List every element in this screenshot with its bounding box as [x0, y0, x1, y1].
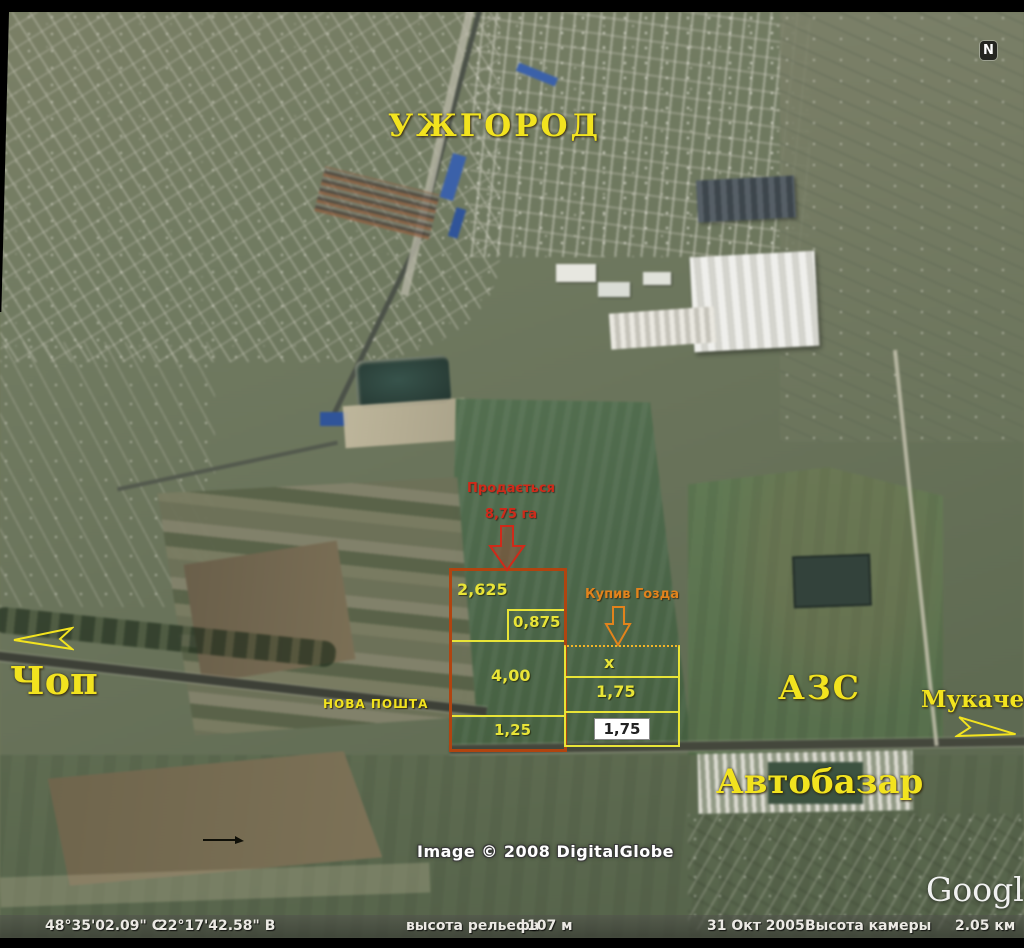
imagery-copyright: Image © 2008 DigitalGlobe — [417, 842, 674, 861]
poi-label-nova-poshta: НОВА ПОШТА — [323, 697, 428, 711]
status-bar: 48°35'02.09" С 22°17'42.58" В высота рел… — [0, 915, 1024, 938]
sale-title: Продається — [467, 481, 555, 496]
down-arrow-icon — [604, 605, 632, 647]
town-label-chop: Чоп — [10, 658, 98, 703]
plot-area-label: 2,625 — [457, 580, 508, 599]
town-label-mukachevo: Мукачево — [921, 686, 1024, 713]
poi-label-car-market: Автобазар — [716, 762, 923, 802]
plot-divider — [566, 676, 678, 678]
camera-altitude-label: Высота камеры — [805, 918, 931, 934]
buyer-annotation: Купив Гозда — [582, 587, 682, 602]
longitude-readout: 22°17'42.58" В — [158, 918, 275, 934]
plot-area-label-boxed: 1,75 — [594, 718, 650, 740]
plot-area-label: 4,00 — [491, 666, 530, 685]
google-earth-screenshot: 2,625 0,875 4,00 1,25 x 1,75 1,75 УЖГОРО… — [0, 0, 1024, 948]
imagery-date: 31 Окт 2005 — [707, 918, 805, 934]
city-label: УЖГОРОД — [388, 108, 601, 144]
north-compass-badge: N — [980, 41, 997, 60]
plot-divider — [452, 715, 564, 717]
plot-divider — [566, 711, 678, 713]
down-arrow-icon — [488, 524, 526, 572]
sale-annotation: Продається 8,75 га — [452, 482, 570, 521]
elevation-label: высота рельефа — [406, 918, 539, 934]
google-logo: Google — [926, 870, 1024, 909]
plot-area-label: 1,75 — [596, 682, 635, 701]
left-arrow-icon — [2, 624, 74, 652]
latitude-readout: 48°35'02.09" С — [45, 918, 162, 934]
small-black-arrow-icon — [201, 832, 245, 848]
camera-altitude-value: 2.05 км — [955, 918, 1015, 934]
elevation-value: 107 м — [527, 918, 573, 934]
map-viewport[interactable]: 2,625 0,875 4,00 1,25 x 1,75 1,75 УЖГОРО… — [0, 12, 1024, 938]
poi-label-gas-station: АЗС — [778, 668, 861, 707]
plot-area-label: 1,25 — [494, 721, 531, 739]
plot-area-label: 0,875 — [513, 613, 560, 631]
plot-area-label: x — [604, 653, 614, 672]
sale-area: 8,75 га — [452, 508, 570, 521]
